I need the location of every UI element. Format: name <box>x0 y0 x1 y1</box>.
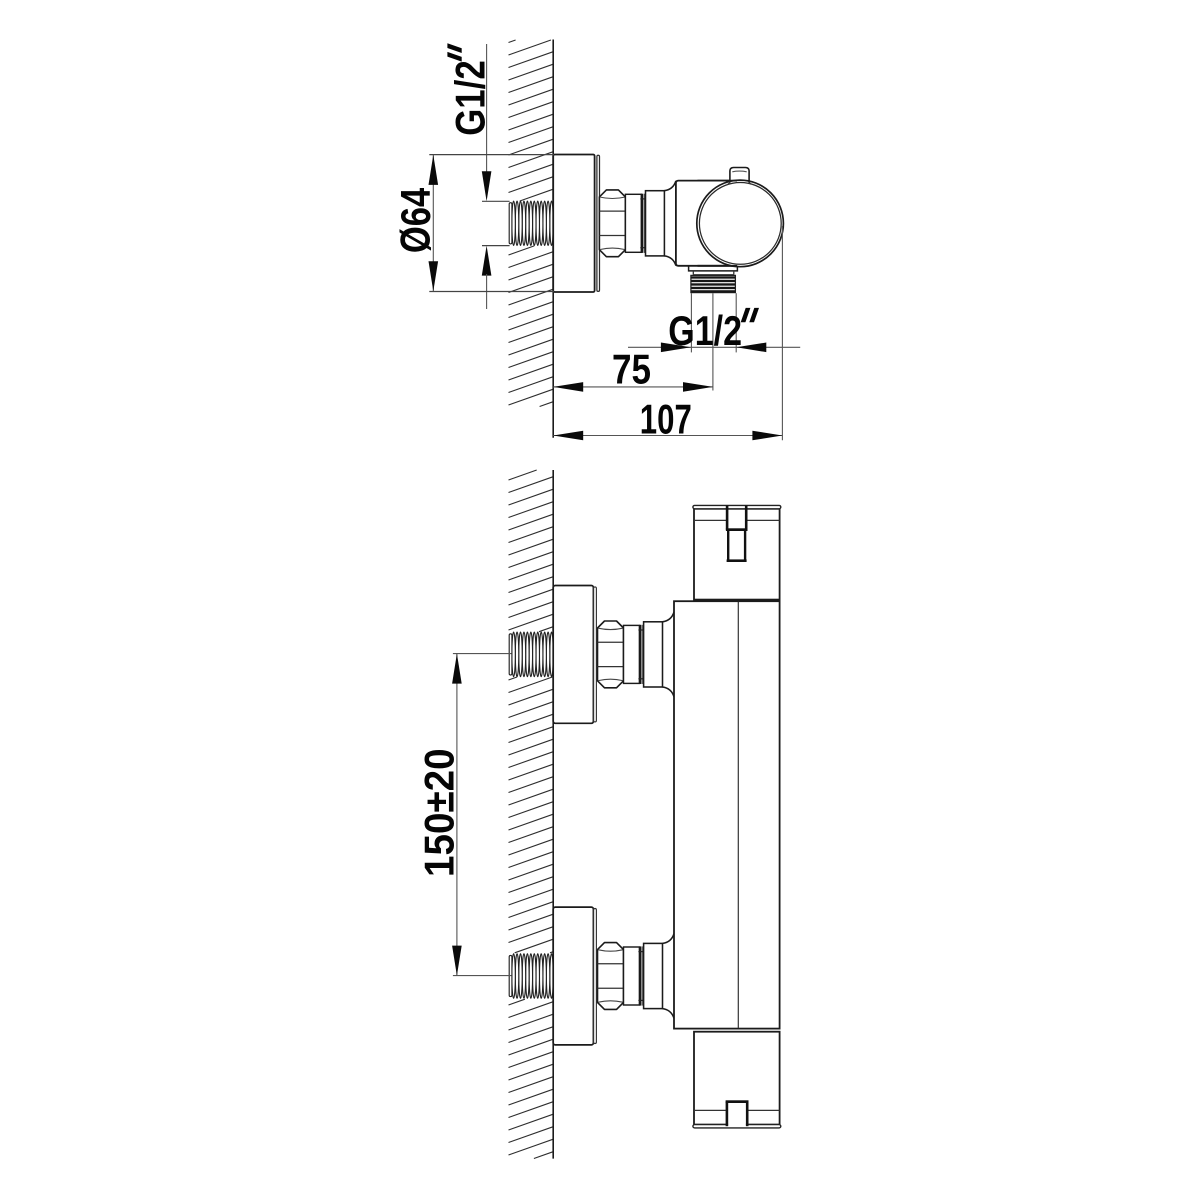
svg-text:G1/2: G1/2 <box>668 307 742 354</box>
svg-text:Ø64: Ø64 <box>392 187 439 253</box>
svg-text:G1/2: G1/2 <box>446 60 493 136</box>
svg-text:75: 75 <box>612 346 651 393</box>
svg-text:150±20: 150±20 <box>415 748 462 877</box>
svg-text:107: 107 <box>640 396 692 443</box>
